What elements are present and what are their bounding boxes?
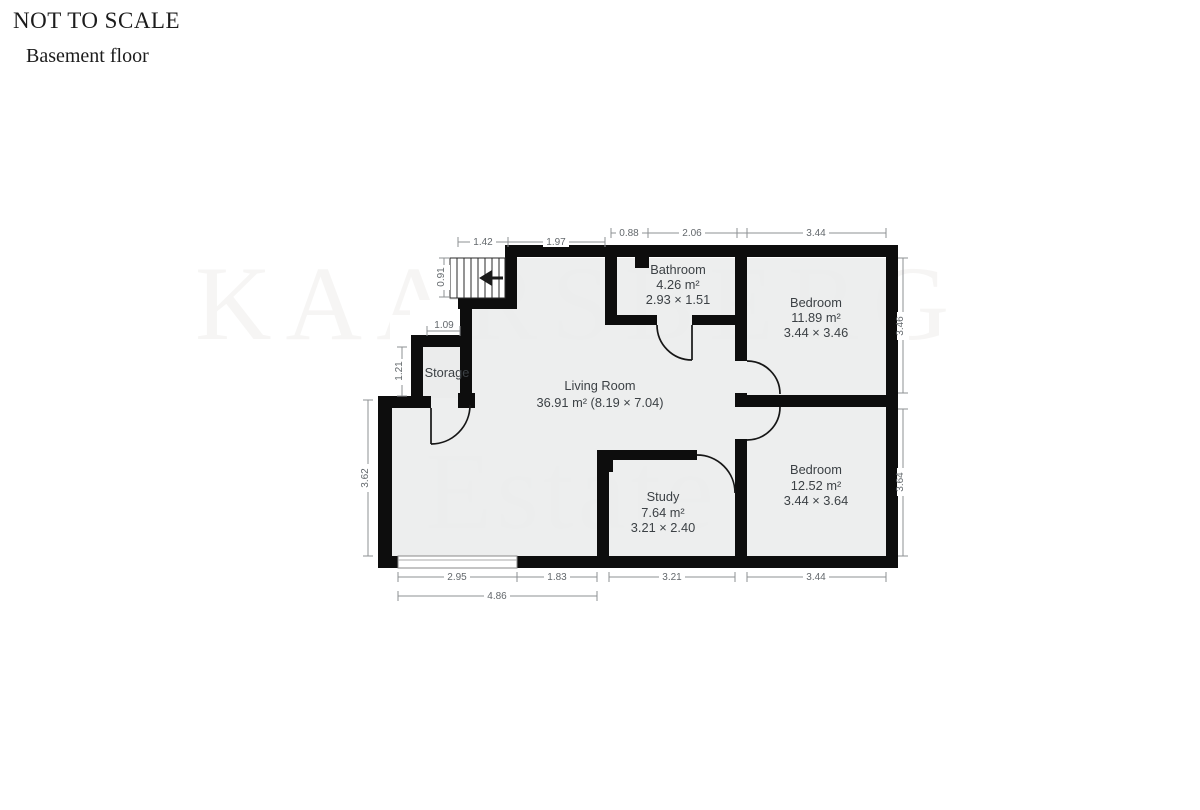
dim-entry-width: 0.88 bbox=[619, 228, 639, 239]
wall-study-left bbox=[597, 450, 609, 556]
wall-stairs-right bbox=[505, 245, 517, 309]
dim-bedroom1-height: 3.46 bbox=[895, 316, 906, 336]
wall-top-pier bbox=[635, 257, 649, 268]
wall-divider-middle bbox=[735, 393, 747, 407]
bedroom2-label: Bedroom bbox=[790, 462, 842, 477]
bathroom-label: Bathroom bbox=[650, 262, 705, 277]
dim-bedroom1-width: 3.44 bbox=[806, 228, 826, 239]
bedroom1-label: Bedroom bbox=[790, 295, 842, 310]
bathroom-size: 2.93 × 1.51 bbox=[646, 292, 710, 307]
wall-storage-right bbox=[460, 297, 472, 401]
dim-recess-width: 1.09 bbox=[434, 320, 454, 331]
living-room-label: Living Room bbox=[564, 378, 635, 393]
bedroom1-size: 3.44 × 3.46 bbox=[784, 325, 848, 340]
study-label: Study bbox=[647, 489, 680, 504]
dim-total-width: 4.86 bbox=[487, 591, 507, 602]
dim-hall-width: 1.97 bbox=[546, 237, 566, 248]
dim-bathroom-width: 2.06 bbox=[682, 228, 702, 239]
dim-living-height: 3.62 bbox=[360, 468, 371, 488]
wall-entry bbox=[378, 396, 431, 408]
floor-plan-drawing: 0.88 2.06 3.44 1.42 1.97 0.91 1.09 1.21 bbox=[0, 0, 1200, 810]
wall-divider-lower bbox=[735, 439, 747, 556]
staircase bbox=[450, 258, 505, 298]
study-size: 3.21 × 2.40 bbox=[631, 520, 695, 535]
wall-left bbox=[378, 396, 392, 568]
window-bottom bbox=[398, 556, 517, 568]
dim-bedroom2-height: 3.64 bbox=[895, 472, 906, 492]
dim-living-bottom: 1.83 bbox=[547, 572, 567, 583]
storage-label: Storage bbox=[425, 365, 470, 380]
wall-bathroom-bottom-left bbox=[605, 315, 657, 325]
dim-stairs-width: 1.42 bbox=[473, 237, 493, 248]
wall-storage-door-pier bbox=[458, 393, 475, 408]
wall-bedroom-divider bbox=[747, 395, 886, 407]
wall-storage-left bbox=[411, 340, 423, 398]
wall-divider-upper bbox=[735, 257, 747, 361]
floor-plan-page: NOT TO SCALE Basement floor KAARSBERG Es… bbox=[0, 0, 1200, 810]
dim-storage-height: 1.21 bbox=[394, 361, 405, 381]
study-area: 7.64 m² bbox=[641, 505, 685, 520]
bathroom-area: 4.26 m² bbox=[656, 277, 700, 292]
dim-bedroom2-width: 3.44 bbox=[806, 572, 826, 583]
bedroom1-area: 11.89 m² bbox=[791, 310, 841, 325]
dim-study-width: 3.21 bbox=[662, 572, 682, 583]
bedroom2-area: 12.52 m² bbox=[791, 478, 842, 493]
living-room-area: 36.91 m² (8.19 × 7.04) bbox=[537, 395, 664, 410]
wall-bathroom-bottom-right bbox=[692, 315, 737, 325]
dim-stairs-depth: 0.91 bbox=[436, 267, 447, 287]
bedroom2-size: 3.44 × 3.64 bbox=[784, 493, 848, 508]
wall-bathroom-left bbox=[605, 257, 617, 325]
dim-window-width: 2.95 bbox=[447, 572, 467, 583]
wall-right bbox=[886, 245, 898, 568]
